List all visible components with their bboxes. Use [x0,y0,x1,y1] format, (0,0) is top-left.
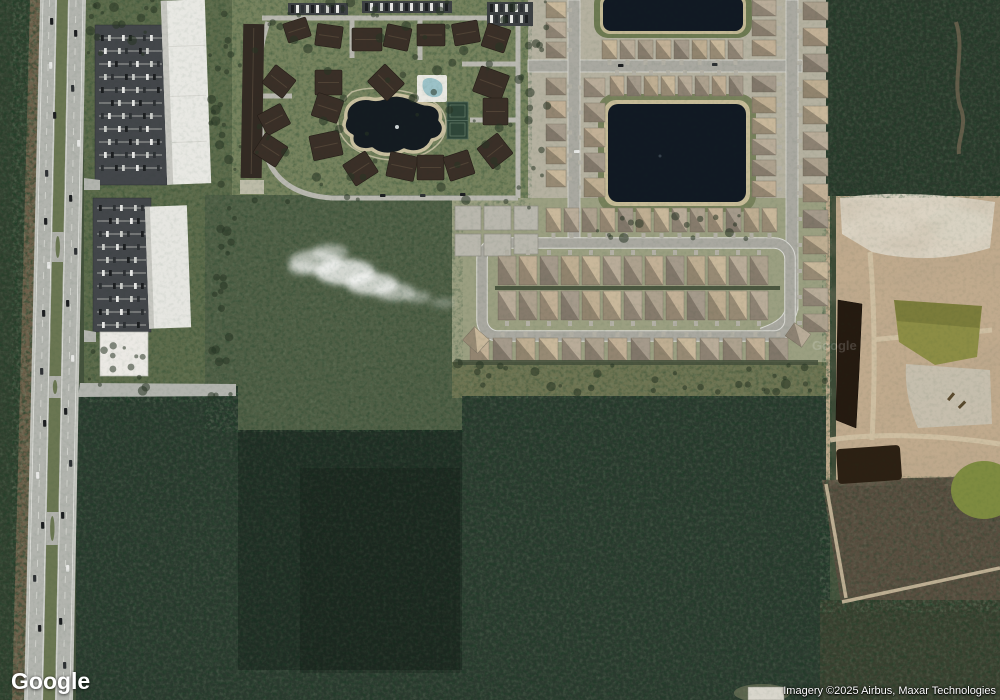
imagery-attribution: Imagery ©2025 Airbus, Maxar Technologies [783,685,996,697]
satellite-imagery: Google [0,0,1000,700]
map-viewport[interactable]: Google Google Imagery ©2025 Airbus, Maxa… [0,0,1000,700]
google-logo[interactable]: Google [11,670,90,693]
photo-grain [0,0,1000,700]
